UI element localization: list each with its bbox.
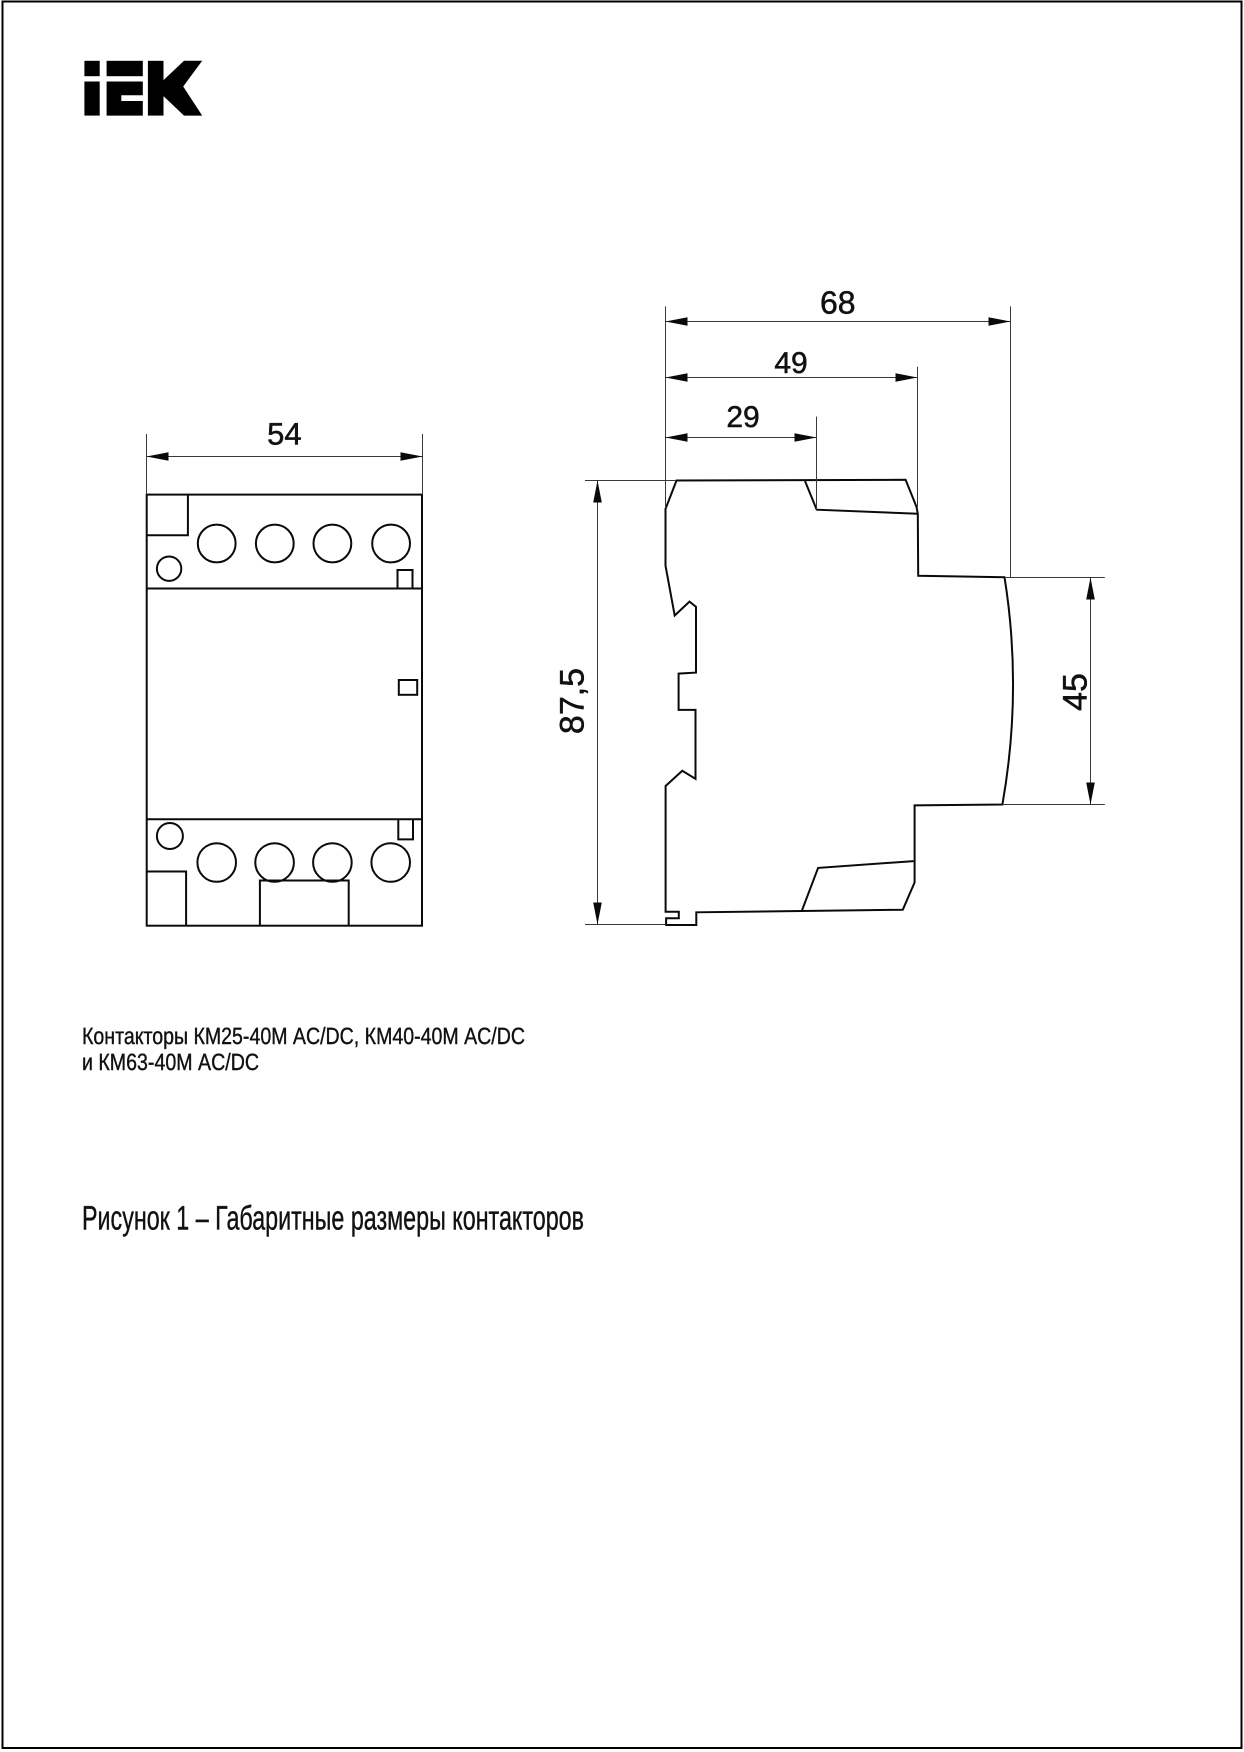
svg-text:Рисунок 1 – Габаритные размеры: Рисунок 1 – Габаритные размеры контактор… bbox=[82, 1200, 584, 1238]
svg-text:68: 68 bbox=[820, 285, 856, 321]
svg-text:45: 45 bbox=[1057, 673, 1095, 711]
svg-text:Контакторы КМ25-40М AC/DC, КМ4: Контакторы КМ25-40М AC/DC, КМ40-40М AC/D… bbox=[82, 1023, 525, 1049]
svg-text:и КМ63-40М AC/DC: и КМ63-40М AC/DC bbox=[82, 1049, 259, 1075]
svg-text:54: 54 bbox=[267, 417, 301, 452]
svg-text:29: 29 bbox=[726, 401, 759, 434]
svg-text:87,5: 87,5 bbox=[554, 668, 592, 734]
svg-text:49: 49 bbox=[774, 347, 807, 380]
